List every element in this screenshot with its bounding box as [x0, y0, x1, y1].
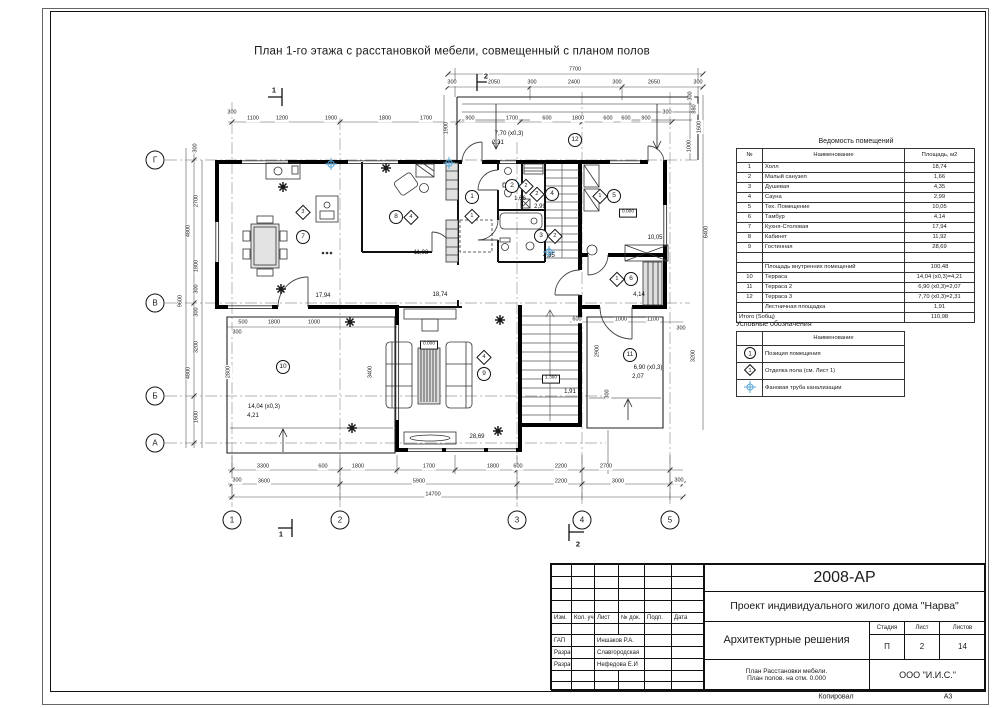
room-schedule-table: № Наименование Площадь, м2 1Холл18,74 2М…	[736, 148, 975, 323]
dim-label: 300	[446, 80, 457, 86]
cell-name	[763, 253, 905, 263]
dim-label: 1000	[614, 317, 628, 323]
dim-label: 900	[640, 116, 651, 122]
dim-label: 2650	[647, 80, 661, 86]
axis-marker-2: 2	[331, 511, 350, 530]
table-row: 5Тех. Помещение10,05	[737, 203, 975, 213]
room-area-label: 2,31	[492, 140, 504, 146]
room-area-label: 7,70 (x0,3)	[495, 131, 524, 137]
tb-role: Разраб.	[552, 647, 572, 659]
cell-area: 7,70 (x0,3)=2,31	[905, 293, 975, 303]
dim-label: 300	[661, 110, 672, 116]
dim-label: 4800	[186, 224, 192, 238]
cell-area: 6,90 (x0,3)=2,07	[905, 283, 975, 293]
room-number-marker: 4	[545, 187, 559, 201]
project-name: Проект индивидуального жилого дома "Нарв…	[703, 591, 986, 622]
legend: Условные обозначения Наименование 1 Пози…	[736, 321, 908, 397]
format-label: А3	[944, 694, 953, 701]
dim-label: 2800	[226, 365, 232, 379]
floor-finish-number: 2	[553, 233, 556, 239]
dim-label: 3200	[194, 340, 200, 354]
dim-label: 600	[317, 464, 328, 470]
tb-person: Иншаков Р.А.	[595, 635, 645, 647]
cell-name: Терраса	[763, 273, 905, 283]
stage-value: П	[869, 634, 905, 660]
dim-label: 7700	[568, 67, 582, 73]
room-number-marker: 7	[296, 230, 310, 244]
room-number-marker: 12	[568, 133, 582, 147]
legend-row: Фановая труба канализации	[737, 380, 905, 397]
section-name: Архитектурные решения	[703, 621, 870, 660]
dim-label: 14700	[424, 492, 441, 498]
cell-num	[737, 253, 763, 263]
table-row: 9Гостинная28,69	[737, 243, 975, 253]
furniture	[243, 163, 668, 444]
room-area-label: 10,05	[647, 235, 662, 241]
section-mark-label: 1	[278, 530, 284, 538]
table-row: 11Терраса 26,90 (x0,3)=2,07	[737, 283, 975, 293]
room-area-label: 28,69	[469, 434, 484, 440]
table-row: Лестничная площадка1,91	[737, 303, 975, 313]
dim-label: 1900	[444, 121, 450, 135]
dim-label: 1100	[646, 317, 660, 323]
legend-row: 1 Отделка пола (см. Лист 1)	[737, 363, 905, 380]
cell-area: 17,94	[905, 223, 975, 233]
dim-label: 1200	[275, 116, 289, 122]
dim-label: 3200	[691, 349, 697, 363]
cell-num	[737, 263, 763, 273]
drain-pipe-icon	[737, 380, 763, 397]
dim-label: 3600	[257, 479, 271, 485]
cell-area: 11,92	[905, 233, 975, 243]
dim-label: 300	[526, 80, 537, 86]
table-row	[737, 253, 975, 263]
room-number-marker: 9	[477, 367, 491, 381]
cell-name: Лестничная площадка	[763, 303, 905, 313]
section-mark-label: 2	[575, 540, 581, 548]
floor-finish-number: 4	[409, 214, 412, 220]
floor-finish-number: 1	[598, 193, 601, 199]
dim-label: 900	[464, 116, 475, 122]
drain-pipe-icons	[325, 157, 555, 258]
dim-label: 300	[226, 110, 237, 116]
dim-label: 1800	[267, 320, 281, 326]
dim-label: 600	[602, 116, 613, 122]
tb-person: Нефедова Е.И	[595, 659, 645, 671]
dim-label: 2700	[599, 464, 613, 470]
room-number-marker: 6	[624, 272, 638, 286]
sheet-label: Лист	[904, 621, 940, 635]
dim-label: 1600	[697, 120, 703, 134]
section-mark-label: 2	[483, 72, 489, 80]
cell-name: Холл	[763, 163, 905, 173]
cell-num: 8	[737, 233, 763, 243]
tb-empty-row	[552, 589, 705, 601]
table-row: Площадь внутренних помещений100,48	[737, 263, 975, 273]
axis-marker-4: 4	[573, 511, 592, 530]
room-number-marker: 1	[465, 190, 479, 204]
floor-finish-number: 1	[470, 213, 473, 219]
room-area-label: 4,35	[543, 253, 555, 259]
dim-label: 3400	[368, 365, 374, 379]
dim-label: 1100	[246, 116, 260, 122]
dim-label: 1700	[422, 464, 436, 470]
table-row: 2Малый санузел1,66	[737, 173, 975, 183]
cell-name: Тамбур	[763, 213, 905, 223]
cell-num: 12	[737, 293, 763, 303]
room-area-label: 1,91	[564, 389, 576, 395]
dim-label: 1800	[571, 116, 585, 122]
cell-area	[905, 253, 975, 263]
drawing-name-line2: План полов. на отм. 0.000	[747, 675, 826, 682]
cell-num: 7	[737, 223, 763, 233]
drawing-sheet: План 1-го этажа с расстановкой мебели, с…	[0, 0, 1000, 708]
tb-col-data: Дата	[672, 613, 705, 624]
room-number-marker: 10	[276, 360, 290, 374]
dim-label: 300	[193, 142, 199, 153]
cell-num: 4	[737, 193, 763, 203]
room-number-marker: 2	[505, 179, 519, 193]
table-row: 4Сауна2,99	[737, 193, 975, 203]
tb-empty-row	[552, 577, 705, 589]
dim-label: 300	[611, 80, 622, 86]
dim-label: 6400	[704, 225, 710, 239]
table-row: 3Душевая4,35	[737, 183, 975, 193]
axis-marker-3: 3	[508, 511, 527, 530]
dim-label: 1800	[351, 464, 365, 470]
cell-name: Терраса 3	[763, 293, 905, 303]
dim-label: 300	[231, 478, 242, 484]
dim-label: 2700	[194, 194, 200, 208]
room-area-label: 14,04 (x0,3)	[248, 404, 280, 410]
floor-finish-number: 4	[482, 354, 485, 360]
tb-empty-row	[552, 671, 705, 682]
floor-finish-number: 2	[524, 183, 527, 189]
cell-area: 110,98	[905, 313, 975, 323]
dim-label: 3300	[256, 464, 270, 470]
axis-grid-lines	[165, 92, 700, 507]
dim-label: 600	[620, 116, 631, 122]
dim-label: 300	[194, 306, 200, 317]
cell-area: 10,05	[905, 203, 975, 213]
svg-text:1: 1	[748, 350, 752, 357]
dim-label: 2200	[554, 464, 568, 470]
tb-col-list: Лист	[595, 613, 619, 624]
position-circle-icon: 1	[737, 346, 763, 363]
level-mark: 1.360	[542, 375, 560, 384]
dim-label: 3000	[611, 479, 625, 485]
dim-label: 2200	[554, 479, 568, 485]
dim-label: 2400	[567, 80, 581, 86]
table-row: 12Терраса 37,70 (x0,3)=2,31	[737, 293, 975, 303]
cell-area: 18,74	[905, 163, 975, 173]
dim-label: 9600	[178, 294, 184, 308]
sheets-label: Листов	[939, 621, 986, 635]
level-mark: 0.000	[619, 209, 637, 218]
room-number-marker: 8	[389, 210, 403, 224]
floor-finish-diamond-icon: 1	[737, 363, 763, 380]
room-schedule-title: Ведомость помещений	[736, 138, 976, 145]
cell-name: Кабинет	[763, 233, 905, 243]
floor-finish-number: 3	[301, 209, 304, 215]
table-row: 10Терраса14,04 (x0,3)=4,21	[737, 273, 975, 283]
col-num: №	[737, 149, 763, 163]
cell-num: 1	[737, 163, 763, 173]
legend-item-label: Фановая труба канализации	[763, 380, 905, 397]
dim-label: 600	[571, 317, 582, 323]
doors	[278, 142, 664, 339]
cell-name: Гостинная	[763, 243, 905, 253]
dim-label: 1900	[324, 116, 338, 122]
tb-empty-row	[552, 601, 705, 613]
stage-label: Стадия	[869, 621, 905, 635]
sheets-total: 14	[939, 634, 986, 660]
legend-name-header: Наименование	[763, 332, 905, 346]
dim-label: 300	[194, 283, 200, 294]
cell-num: 11	[737, 283, 763, 293]
section-mark-label: 1	[271, 86, 277, 94]
floor-finish-number: 1	[615, 276, 618, 282]
table-row: 8Кабинет11,92	[737, 233, 975, 243]
legend-row: 1 Позиция помещения	[737, 346, 905, 363]
axis-marker-5: 5	[661, 511, 680, 530]
tb-role: Разраб.	[552, 659, 572, 671]
tb-col-izm: Изм.	[552, 613, 572, 624]
cell-area: 100,48	[905, 263, 975, 273]
room-area-label: 2,99	[534, 204, 546, 210]
table-row: 7Кухня-Столовая17,94	[737, 223, 975, 233]
plan-title: План 1-го этажа с расстановкой мебели, с…	[254, 46, 650, 58]
svg-text:1: 1	[748, 368, 751, 374]
document-code: 2008-АР	[703, 564, 986, 592]
dim-label: 1800	[194, 259, 200, 273]
cell-num: 5	[737, 203, 763, 213]
cell-area: 14,04 (x0,3)=4,21	[905, 273, 975, 283]
room-area-label: 6,90 (x0,3)	[634, 365, 663, 371]
cell-area: 1,91	[905, 303, 975, 313]
title-block: Изм. Кол. уч. Лист № док. Подп. Дата ГАП…	[550, 563, 985, 690]
legend-table: Наименование 1 Позиция помещения 1 Отдел…	[736, 331, 905, 397]
floor-finish-number: 2	[535, 191, 538, 197]
tb-col-doc: № док.	[619, 613, 645, 624]
tb-header-row: Изм. Кол. уч. Лист № док. Подп. Дата	[552, 613, 705, 624]
axis-marker-1: 1	[223, 511, 242, 530]
dim-label: 1000	[687, 139, 693, 153]
dim-label: 300	[692, 80, 703, 86]
cell-name: Сауна	[763, 193, 905, 203]
room-area-label: 11,92	[414, 250, 429, 256]
cell-area: 28,69	[905, 243, 975, 253]
cell-area: 4,35	[905, 183, 975, 193]
room-area-label: 18,74	[432, 292, 447, 298]
cell-num: 3	[737, 183, 763, 193]
dim-label: 5900	[412, 479, 426, 485]
cell-name: Душевая	[763, 183, 905, 193]
tb-role: ГАП	[552, 635, 572, 647]
room-number-marker: 11	[623, 348, 637, 362]
cell-area: 1,66	[905, 173, 975, 183]
cell-num: 9	[737, 243, 763, 253]
room-area-label: 2,07	[632, 374, 644, 380]
tb-role-row: ГАПИншаков Р.А.	[552, 635, 705, 647]
dim-label: 300	[673, 478, 684, 484]
tb-col-kol: Кол. уч.	[572, 613, 595, 624]
legend-title: Условные обозначения	[736, 321, 908, 328]
cell-num: 10	[737, 273, 763, 283]
cell-num: 2	[737, 173, 763, 183]
room-area-label: 4,14	[633, 292, 645, 298]
room-number-marker: 3	[534, 229, 548, 243]
dim-label: 300	[675, 326, 686, 332]
room-area-label: 4,21	[247, 413, 259, 419]
cell-name: Площадь внутренних помещений	[763, 263, 905, 273]
title-block-signature-grid: Изм. Кол. уч. Лист № док. Подп. Дата ГАП…	[551, 564, 705, 691]
cell-name: Терраса 2	[763, 283, 905, 293]
legend-item-label: Отделка пола (см. Лист 1)	[763, 363, 905, 380]
table-header-row: № Наименование Площадь, м2	[737, 149, 975, 163]
cell-area: 2,99	[905, 193, 975, 203]
tb-empty-row	[552, 624, 705, 635]
dim-label: 600	[541, 116, 552, 122]
tb-empty-row	[552, 565, 705, 577]
dim-label: 2050	[487, 80, 501, 86]
dim-label: 880	[692, 103, 698, 114]
level-mark: 0.000	[420, 341, 438, 350]
cell-num: 6	[737, 213, 763, 223]
col-area: Площадь, м2	[905, 149, 975, 163]
dim-label: 300	[231, 330, 242, 336]
table-row: 1Холл18,74	[737, 163, 975, 173]
dim-label: 500	[237, 320, 248, 326]
cell-num	[737, 303, 763, 313]
legend-item-label: Позиция помещения	[763, 346, 905, 363]
dim-label: 1800	[486, 464, 500, 470]
cell-name: Малый санузел	[763, 173, 905, 183]
legend-symbol-header	[737, 332, 763, 346]
room-area-label: 17,94	[315, 293, 330, 299]
dim-label: 300	[688, 90, 694, 101]
cell-name: Кухня-Столовая	[763, 223, 905, 233]
tb-person: Славгородская	[595, 647, 645, 659]
dim-label: 1600	[194, 410, 200, 424]
room-number-marker: 5	[607, 189, 621, 203]
table-row: 6Тамбур4,14	[737, 213, 975, 223]
axis-marker-g: Г	[146, 151, 165, 170]
copied-label: Копировал	[818, 694, 853, 701]
axis-marker-v: В	[146, 294, 165, 313]
room-area-label: 1,66	[514, 196, 526, 202]
tb-role-row: Разраб.Славгородская	[552, 647, 705, 659]
dim-label: 600	[512, 464, 523, 470]
dim-label: 1700	[505, 116, 519, 122]
cell-name: Тех. Помещение	[763, 203, 905, 213]
axis-marker-b: Б	[146, 387, 165, 406]
col-name: Наименование	[763, 149, 905, 163]
dim-label: 4800	[186, 366, 192, 380]
tb-empty-row	[552, 682, 705, 691]
cell-area: 4,14	[905, 213, 975, 223]
dim-label: 300	[605, 388, 611, 399]
dim-label: 1700	[419, 116, 433, 122]
tb-role-row: Разраб.Нефедова Е.И	[552, 659, 705, 671]
drawing-name: План Расстановки мебели. План полов. на …	[703, 659, 870, 691]
sheet-number: 2	[904, 634, 940, 660]
axis-marker-a: А	[146, 434, 165, 453]
dim-label: 1800	[378, 116, 392, 122]
dim-label: 2900	[595, 344, 601, 358]
company-name: ООО "И.И.С."	[869, 659, 986, 691]
dim-label: 1000	[307, 320, 321, 326]
room-schedule: Ведомость помещений № Наименование Площа…	[736, 138, 976, 323]
table-header-row: Наименование	[737, 332, 905, 346]
drawing-name-line1: План Расстановки мебели.	[746, 668, 827, 675]
tb-col-podp: Подп.	[645, 613, 672, 624]
